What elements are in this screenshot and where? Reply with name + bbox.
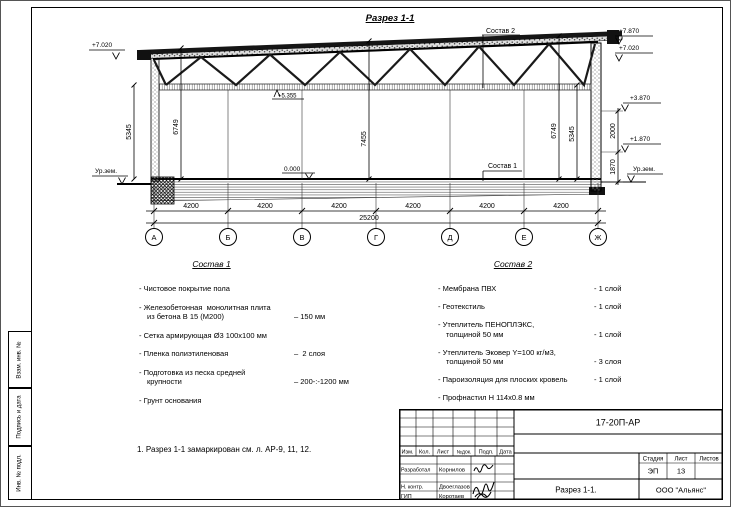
stage-value: ЭП [648, 467, 659, 476]
svg-text:6749: 6749 [173, 119, 180, 135]
svg-text:4200: 4200 [405, 203, 421, 210]
grid-axis-e: Е [521, 233, 526, 242]
elevation-right-1870: +1.870 [622, 136, 662, 152]
svg-text:Подп.: Подп. [479, 449, 494, 455]
svg-text:0.000: 0.000 [284, 166, 301, 173]
person-name: Коротаев [439, 494, 464, 500]
svg-text:Лист: Лист [674, 457, 687, 463]
grid-axis-d: Д [447, 233, 452, 242]
svg-text:+5.355: +5.355 [278, 94, 297, 100]
margin-label: Инв. № подл. [17, 454, 23, 491]
elevation-ground-right: Ур.зем. [627, 166, 663, 182]
interior-grid-lines [228, 90, 524, 179]
list-item: - Пленка полиэтиленовая– 2 слоя [139, 349, 434, 359]
svg-text:Листов: Листов [699, 457, 719, 463]
svg-text:+1.870: +1.870 [630, 136, 650, 143]
svg-text:4200: 4200 [183, 203, 199, 210]
column-left [151, 58, 159, 181]
elevation-right-7020: +7.020 [615, 45, 653, 61]
svg-text:7455: 7455 [361, 131, 368, 147]
elevation-floor: 0.000 [282, 166, 315, 179]
list-item: - Подготовка из песка средней крупности–… [139, 368, 434, 387]
svg-text:6749: 6749 [551, 123, 558, 139]
grid-axes: А Б В Г Д Е Ж [146, 229, 607, 246]
grid-axis-b: Б [226, 233, 231, 242]
list-item: - Грунт основания [139, 396, 434, 406]
floor-slab [117, 177, 646, 204]
sostav1-block: Состав 1 - Чистовое покрытие пола - Желе… [139, 259, 434, 414]
sostav1-title: Состав 1 [139, 259, 284, 269]
margin-box-inv: Инв. № подл. [8, 446, 32, 500]
svg-text:5345: 5345 [126, 124, 133, 140]
svg-text:Ур.зем.: Ур.зем. [95, 168, 117, 175]
fascia-right [607, 30, 619, 44]
svg-text:4200: 4200 [331, 203, 347, 210]
callout-sostav1-label: Состав 1 [488, 163, 517, 170]
svg-text:Изм.: Изм. [402, 449, 414, 455]
margin-box-vzam: Взам. инв. № [8, 331, 32, 388]
list-item: - Сетка армирующая Ø3 100х100 мм [139, 331, 434, 341]
grid-axis-a: А [151, 233, 156, 242]
role-label: ГИП [401, 494, 412, 500]
person-name: Корнилов [439, 468, 465, 474]
list-item: - Чистовое покрытие пола [139, 284, 434, 294]
drawing-note: 1. Разрез 1-1 замаркирован см. л. АР-9, … [137, 445, 311, 454]
section-drawing: Состав 2 Состав 1 +7.020 Ур.зем. +7.870 [86, 9, 731, 254]
title-block: 17-20П-АР Изм. Кол. Лист №док. Подп. Дат… [399, 409, 723, 500]
fascia-left [137, 50, 151, 60]
company-name: ООО "Альянс" [656, 486, 706, 495]
grid-axis-v: В [299, 233, 304, 242]
list-item: - Железобетонная монолитная плита из бет… [139, 303, 434, 322]
grid-axis-g: Г [374, 233, 378, 242]
svg-text:№док.: №док. [457, 449, 472, 455]
svg-text:4200: 4200 [479, 203, 495, 210]
callout-sostav2-label: Состав 2 [486, 28, 515, 35]
right-side-dimensions: 2000 1870 [601, 108, 623, 185]
list-item: - Геотекстиль- 1 слой [438, 302, 723, 312]
role-label: Н. контр. [401, 485, 423, 491]
grid-axis-zh: Ж [595, 233, 602, 242]
svg-text:4200: 4200 [257, 203, 273, 210]
sheet-number: 13 [677, 467, 685, 476]
list-item: - Утеплитель ПЕНОПЛЭКС, толщиной 50 мм- … [438, 320, 723, 339]
doc-number: 17-20П-АР [596, 418, 641, 428]
svg-text:Лист: Лист [437, 449, 450, 455]
svg-text:2000: 2000 [610, 123, 617, 139]
margin-box-podpis: Подпись и дата [8, 388, 32, 446]
svg-text:5345: 5345 [569, 126, 576, 142]
svg-text:Ур.зем.: Ур.зем. [633, 166, 655, 173]
list-item: - Утеплитель Эковер Y=100 кг/м3, толщино… [438, 348, 723, 367]
svg-text:25200: 25200 [359, 215, 379, 222]
elevation-truss-bottom: +5.355 [272, 90, 304, 100]
list-item: - Мембрана ПВХ- 1 слой [438, 284, 723, 294]
stage-header-row: Стадия Лист Листов [643, 457, 719, 463]
svg-text:+7.020: +7.020 [619, 45, 639, 52]
elevation-right-7870: +7.870 [615, 28, 653, 44]
svg-text:Кол.: Кол. [419, 449, 431, 455]
svg-text:1870: 1870 [610, 159, 617, 175]
drawing-sheet: Взам. инв. № Подпись и дата Инв. № подл.… [0, 0, 731, 507]
svg-text:Стадия: Стадия [643, 457, 663, 463]
svg-text:+7.020: +7.020 [92, 42, 112, 49]
sheet-title: Разрез 1-1. [555, 486, 597, 495]
elevation-ground-left: Ур.зем. [92, 168, 128, 184]
column-right [591, 43, 601, 191]
list-item: - Профнастил Н 114х0.8 мм [438, 393, 723, 403]
list-item: - Пароизоляция для плоских кровель- 1 сл… [438, 375, 723, 385]
person-name: Двоеглазов [439, 485, 470, 491]
svg-text:+7.870: +7.870 [619, 28, 639, 35]
margin-label: Подпись и дата [17, 395, 23, 438]
elevation-left-top: +7.020 [89, 42, 125, 59]
svg-text:Дата: Дата [499, 449, 512, 455]
svg-text:+3.870: +3.870 [630, 95, 650, 102]
role-label: Разработал [401, 468, 430, 474]
elevation-right-3870: +3.870 [622, 95, 662, 111]
svg-text:4200: 4200 [553, 203, 569, 210]
margin-label: Взам. инв. № [17, 341, 23, 378]
sostav2-title: Состав 2 [438, 259, 588, 269]
